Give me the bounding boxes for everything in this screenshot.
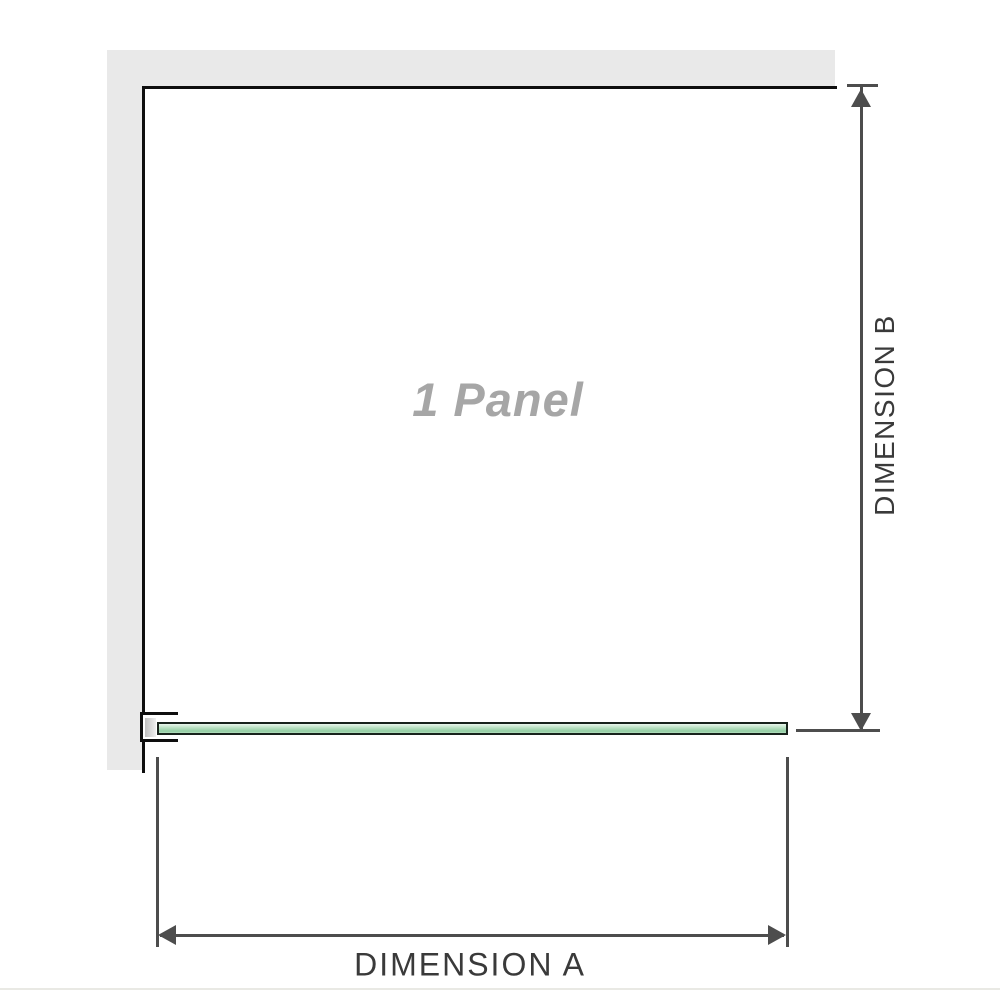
arrow-right-icon — [768, 925, 786, 945]
dimension-b-label: DIMENSION B — [869, 314, 901, 516]
wall-top — [107, 50, 835, 86]
dimension-b-line — [860, 87, 863, 731]
panel-left-edge-line — [142, 86, 145, 773]
bottom-divider — [0, 988, 1000, 990]
arrow-down-icon — [851, 713, 871, 731]
dimension-a-left-extension-line — [156, 757, 159, 947]
bracket-shade — [145, 718, 156, 737]
dimension-a-label: DIMENSION A — [354, 947, 586, 984]
dimension-a-line — [160, 934, 784, 937]
panel-count-label: 1 Panel — [358, 368, 638, 430]
arrow-up-icon — [851, 89, 871, 107]
panel-top-edge-line — [142, 86, 837, 89]
arrow-left-icon — [158, 925, 176, 945]
dimension-a-right-extension-line — [786, 757, 789, 947]
shower-panel-dimension-diagram: 1 Panel DIMENSION B DIMENSION A — [0, 0, 1000, 1000]
glass-panel — [157, 722, 788, 735]
wall-left — [107, 50, 142, 770]
